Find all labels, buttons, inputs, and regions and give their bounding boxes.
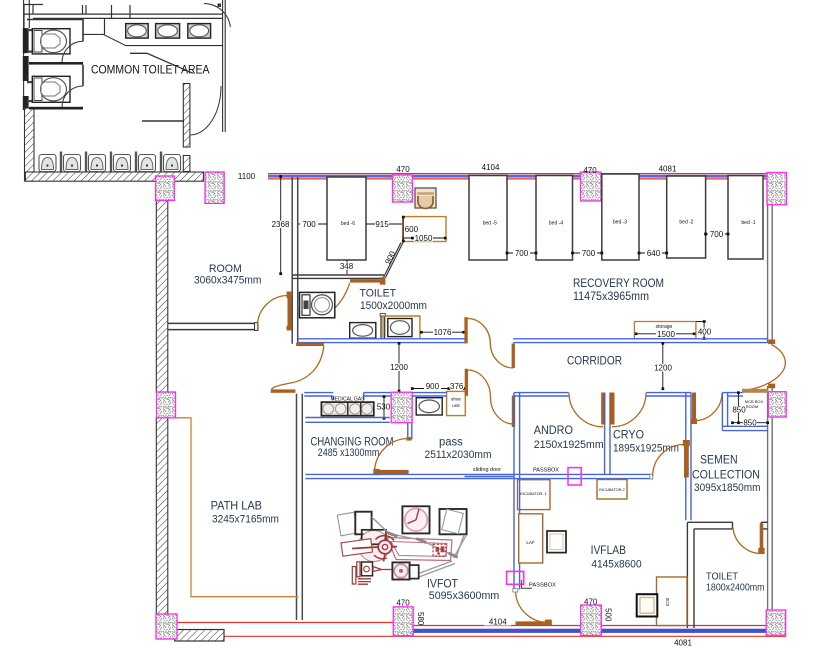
svg-text:1050: 1050 xyxy=(415,234,433,243)
svg-text:4104: 4104 xyxy=(489,618,507,627)
svg-text:SEMEN: SEMEN xyxy=(700,455,738,467)
svg-text:IVFOT: IVFOT xyxy=(427,579,458,591)
svg-text:ANDRO: ANDRO xyxy=(534,425,573,437)
svg-text:580: 580 xyxy=(416,612,425,626)
svg-text:1100: 1100 xyxy=(238,172,256,181)
svg-text:3245x7165mm: 3245x7165mm xyxy=(212,514,279,526)
svg-text:4081: 4081 xyxy=(674,639,692,648)
svg-text:INCUBATOR- 1: INCUBATOR- 1 xyxy=(520,492,546,496)
svg-text:530: 530 xyxy=(377,402,391,411)
svg-text:470: 470 xyxy=(396,165,410,174)
svg-text:INCUBATOR-2: INCUBATOR-2 xyxy=(599,488,624,492)
svg-text:1800x2400mm: 1800x2400mm xyxy=(706,583,765,594)
svg-text:4145x8600: 4145x8600 xyxy=(591,559,641,571)
svg-text:850: 850 xyxy=(743,419,757,428)
svg-text:11475x3965mm: 11475x3965mm xyxy=(573,289,649,303)
svg-text:3095x1850mm: 3095x1850mm xyxy=(694,482,761,494)
svg-text:470: 470 xyxy=(396,599,410,608)
svg-text:400: 400 xyxy=(698,328,712,337)
svg-text:bed -2: bed -2 xyxy=(679,219,693,225)
svg-text:pass: pass xyxy=(439,437,463,449)
svg-text:IVFLAB: IVFLAB xyxy=(591,545,627,557)
svg-text:bed -3: bed -3 xyxy=(613,219,627,225)
svg-text:ROOM: ROOM xyxy=(746,404,758,409)
svg-text:bed -1: bed -1 xyxy=(741,220,755,226)
svg-text:376: 376 xyxy=(450,382,464,391)
svg-text:COLLECTION: COLLECTION xyxy=(692,470,760,482)
svg-text:COMMON TOILET AREA: COMMON TOILET AREA xyxy=(91,63,210,77)
svg-text:TOILET: TOILET xyxy=(706,571,739,583)
svg-text:1500: 1500 xyxy=(657,330,675,339)
svg-text:CORRIDOR: CORRIDOR xyxy=(567,354,622,368)
svg-text:1200: 1200 xyxy=(390,363,408,372)
svg-text:ROOM: ROOM xyxy=(209,263,242,275)
svg-text:915: 915 xyxy=(375,220,389,229)
svg-text:700: 700 xyxy=(582,249,596,258)
svg-text:PASSBOX: PASSBOX xyxy=(529,583,556,589)
svg-text:2511x2030mm: 2511x2030mm xyxy=(425,449,492,461)
svg-text:bed -4: bed -4 xyxy=(549,220,563,226)
svg-text:4104: 4104 xyxy=(482,163,500,172)
svg-text:3060x3475mm: 3060x3475mm xyxy=(194,275,261,287)
svg-text:RECOVERY ROOM: RECOVERY ROOM xyxy=(573,276,664,290)
svg-text:640: 640 xyxy=(647,249,661,258)
svg-text:shoe: shoe xyxy=(451,397,461,402)
svg-text:850: 850 xyxy=(732,406,746,415)
svg-text:LAF: LAF xyxy=(526,540,535,545)
svg-text:470: 470 xyxy=(584,598,598,607)
svg-text:2150x1925mm: 2150x1925mm xyxy=(534,439,604,451)
svg-text:2485 x1300mm: 2485 x1300mm xyxy=(318,447,380,459)
svg-text:470: 470 xyxy=(583,166,597,175)
svg-text:1200: 1200 xyxy=(654,364,672,373)
svg-text:2368: 2368 xyxy=(272,220,290,229)
svg-text:bed -5: bed -5 xyxy=(483,220,497,226)
svg-text:600: 600 xyxy=(405,225,419,234)
svg-text:348: 348 xyxy=(340,262,354,271)
svg-text:5095x3600mm: 5095x3600mm xyxy=(429,590,499,602)
svg-text:900: 900 xyxy=(426,382,440,391)
svg-text:1500x2000mm: 1500x2000mm xyxy=(360,300,427,312)
svg-text:TOILET: TOILET xyxy=(360,288,397,300)
svg-text:700: 700 xyxy=(302,220,316,229)
svg-text:ICSI: ICSI xyxy=(665,598,670,607)
svg-text:1076: 1076 xyxy=(434,328,452,337)
svg-text:700: 700 xyxy=(710,230,724,239)
svg-text:500: 500 xyxy=(604,608,613,622)
svg-text:4081: 4081 xyxy=(659,165,677,174)
svg-text:bed -6: bed -6 xyxy=(341,221,355,227)
svg-text:PASSBOX: PASSBOX xyxy=(533,467,559,473)
svg-text:unit: unit xyxy=(452,403,460,408)
svg-text:sliding door: sliding door xyxy=(473,467,501,473)
svg-text:CRYO: CRYO xyxy=(613,430,644,442)
svg-text:PATH LAB: PATH LAB xyxy=(211,501,263,513)
svg-text:700: 700 xyxy=(515,249,529,258)
